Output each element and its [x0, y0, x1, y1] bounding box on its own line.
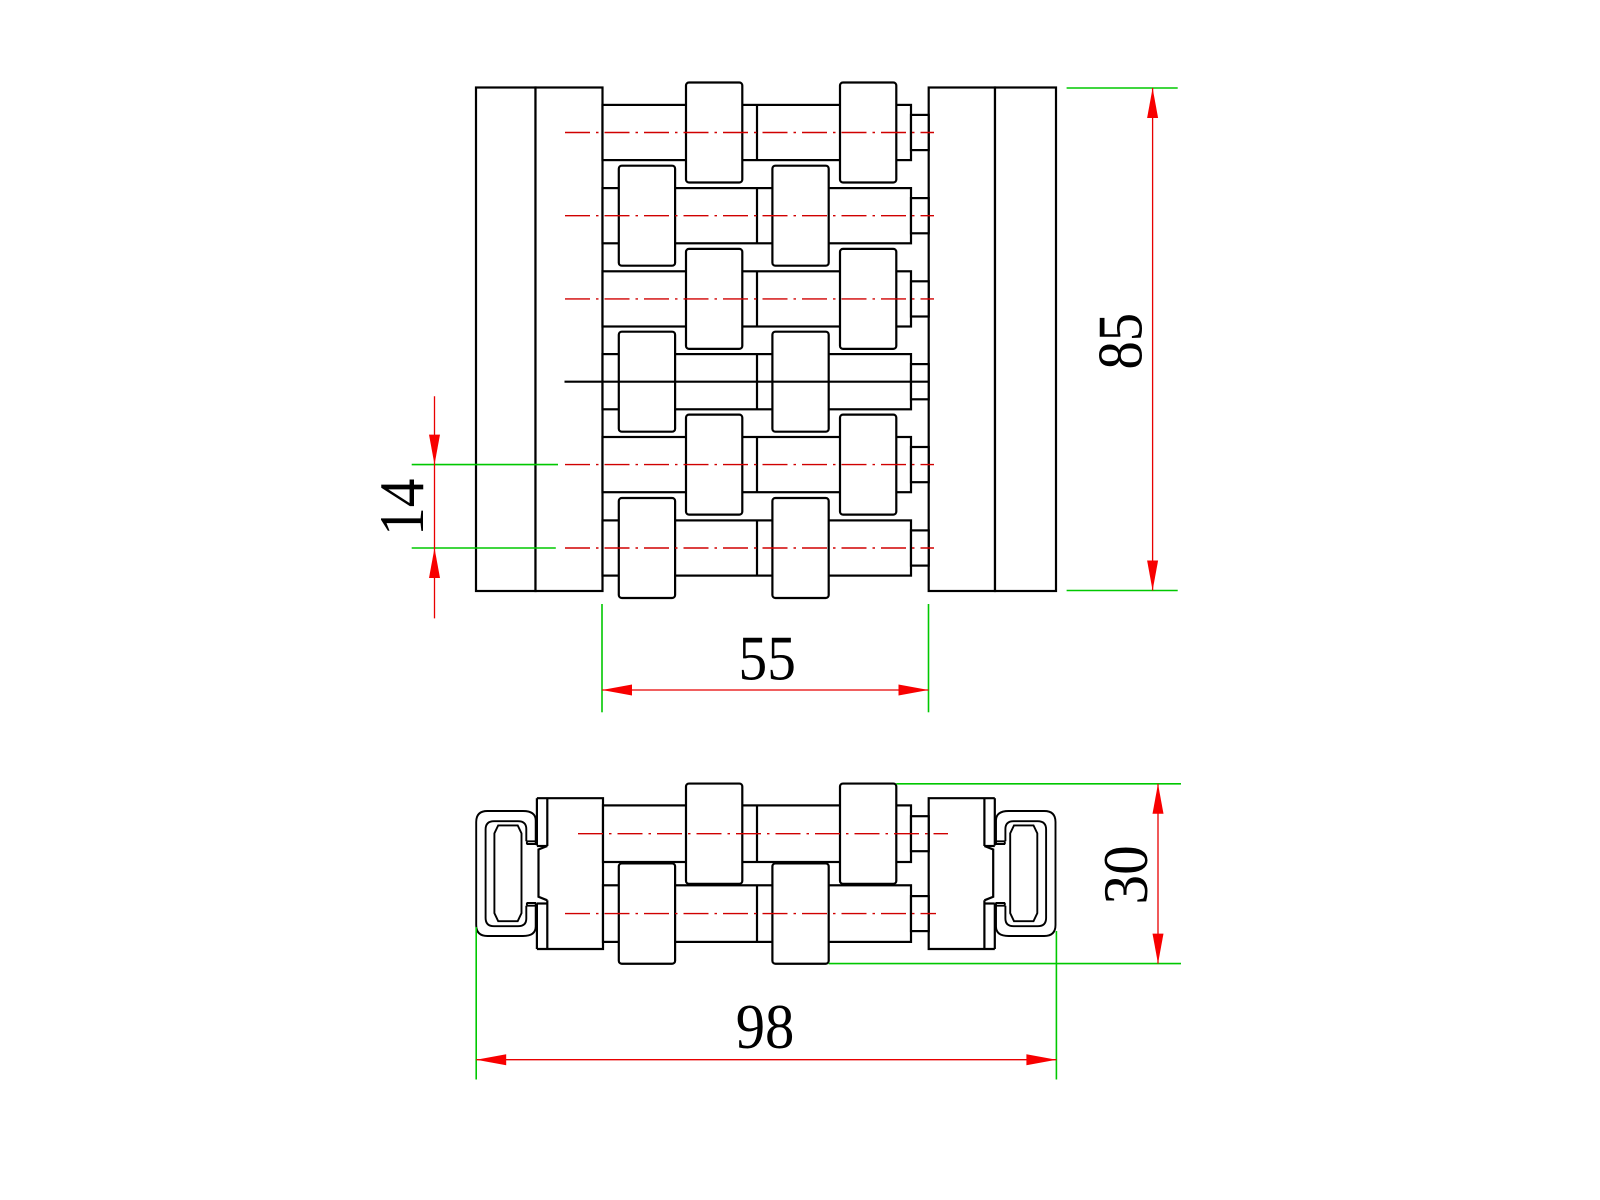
svg-text:85: 85 [1086, 313, 1156, 370]
svg-text:30: 30 [1091, 845, 1161, 904]
svg-text:98: 98 [736, 992, 795, 1062]
svg-text:55: 55 [739, 624, 796, 694]
svg-text:14: 14 [367, 479, 437, 536]
